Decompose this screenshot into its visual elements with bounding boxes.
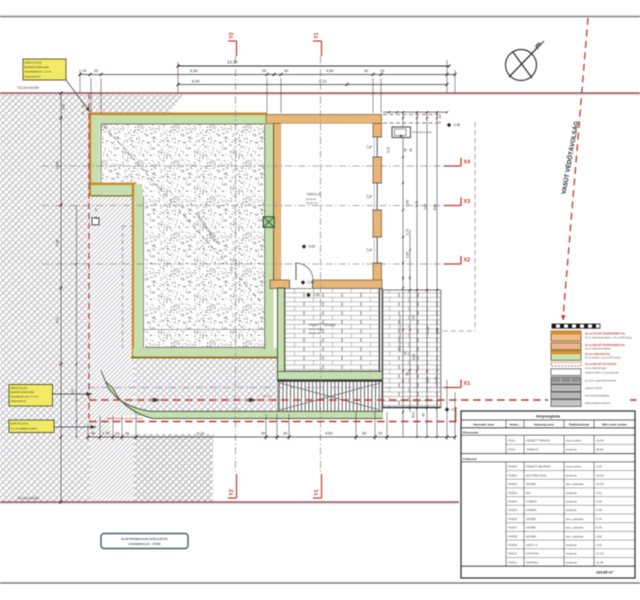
svg-text:4,50: 4,50 — [326, 68, 334, 73]
svg-text:X2: X2 — [464, 258, 471, 264]
svg-text:5,40: 5,40 — [596, 500, 602, 504]
svg-text:30: 30 — [404, 148, 408, 152]
svg-text:30 cm zsalukő + 12 cm XPS hősz: 30 cm zsalukő + 12 cm XPS hőszig. — [585, 357, 621, 359]
svg-text:kiemelkedő rel. 1 m-re: kiemelkedő rel. 1 m-re — [25, 70, 52, 74]
svg-text:SZOBA: SZOBA — [526, 526, 536, 530]
svg-text:30 cm vázkerámia falazat + 15: 30 cm vázkerámia falazat + 15 cm EPS hős… — [585, 336, 632, 339]
svg-text:15: 15 — [404, 351, 408, 355]
svg-text:10 cm BELSŐ VÁLASZFAL: 10 cm BELSŐ VÁLASZFAL — [585, 363, 617, 366]
svg-text:3,32: 3,32 — [596, 465, 602, 469]
svg-text:kerámia: kerámia — [566, 552, 577, 556]
svg-text:FSZ02: FSZ02 — [508, 482, 517, 486]
svg-text:ELEKTRONIKUSAN HITELESÍTVE: ELEKTRONIKUSAN HITELESÍTVE — [121, 536, 167, 541]
svg-text:34,66 m2: 34,66 m2 — [306, 201, 318, 205]
svg-text:35,5: 35,5 — [412, 412, 416, 418]
svg-text:1,0: 1,0 — [366, 145, 370, 149]
svg-text:kerámia: kerámia — [566, 473, 577, 477]
svg-text:30 cm vázkerámia falazat: 30 cm vázkerámia falazat — [585, 347, 611, 350]
svg-text:TÁROLÓ: TÁROLÓ — [306, 192, 321, 197]
svg-text:lam. parketta: lam. parketta — [566, 534, 584, 538]
svg-text:kerámia: kerámia — [566, 500, 577, 504]
svg-text:FÜRDŐ: FÜRDŐ — [526, 499, 537, 504]
svg-text:NAPPALI: NAPPALI — [526, 560, 539, 564]
svg-text:WC: WC — [526, 491, 532, 495]
svg-text:13,06: 13,06 — [596, 473, 604, 477]
svg-text:30: 30 — [402, 276, 406, 280]
svg-text:SZOBA: SZOBA — [526, 482, 536, 486]
svg-text:X1: X1 — [464, 381, 471, 387]
svg-text:1,23: 1,23 — [426, 377, 430, 383]
svg-text:7,07: 7,07 — [424, 204, 428, 210]
svg-text:helyezhető el: helyezhető el — [25, 74, 41, 78]
svg-text:15: 15 — [380, 68, 384, 73]
svg-text:kerámia: kerámia — [566, 508, 577, 512]
svg-text:3 m-es oldalkert határa: 3 m-es oldalkert határa — [11, 427, 38, 431]
svg-text:4,00: 4,00 — [56, 317, 60, 324]
svg-text:FSZ10: FSZ10 — [508, 552, 517, 556]
svg-text:4,55: 4,55 — [436, 328, 440, 334]
svg-text:30 cm BELSŐ TEHERHORDÓ FAL: 30 cm BELSŐ TEHERHORDÓ FAL — [585, 344, 626, 347]
svg-text:1,75: 1,75 — [102, 430, 110, 435]
svg-text:FSZ00: FSZ00 — [508, 465, 517, 469]
svg-text:Helyiséglista: Helyiséglista — [536, 413, 561, 418]
svg-text:4,01: 4,01 — [596, 491, 602, 495]
svg-text:12,35: 12,35 — [596, 482, 604, 486]
svg-text:2,80: 2,80 — [406, 200, 410, 206]
svg-text:vasbeton födém, ill. gerenda p: vasbeton födém, ill. gerenda pofa — [585, 371, 619, 374]
svg-text:földvisszatöltés tömörítve: földvisszatöltés tömörítve — [585, 402, 611, 405]
svg-text:1,00: 1,00 — [62, 104, 66, 110]
svg-text:mérőszekrény helye: mérőszekrény helye — [412, 131, 433, 134]
svg-text:7,58: 7,58 — [56, 240, 60, 247]
svg-text:-3,2: -3,2 — [451, 408, 457, 412]
svg-text:5,10: 5,10 — [319, 78, 327, 83]
svg-text:Padlóburkolat: Padlóburkolat — [569, 422, 589, 426]
svg-text:P101: P101 — [508, 438, 515, 442]
svg-text:30: 30 — [94, 208, 98, 212]
svg-text:15: 15 — [81, 111, 85, 115]
svg-text:9,82: 9,82 — [596, 534, 602, 538]
svg-text:7,05: 7,05 — [412, 315, 416, 321]
svg-text:FEDETT BEJÁRÓ: FEDETT BEJÁRÓ — [526, 464, 551, 469]
svg-text:3,25: 3,25 — [387, 147, 391, 153]
svg-text:vasbeton C12/15: vasbeton C12/15 — [585, 387, 603, 390]
svg-text:FSZ09: FSZ09 — [508, 543, 517, 547]
svg-text:Pinceszint: Pinceszint — [463, 430, 478, 434]
svg-text:TELEKHATÁR: TELEKHATÁR — [17, 86, 40, 90]
svg-text:40: 40 — [422, 413, 426, 417]
svg-text:6,80: 6,80 — [433, 204, 437, 210]
svg-text:-3,99: -3,99 — [307, 281, 315, 285]
svg-text:P102: P102 — [508, 448, 515, 452]
svg-text:2004 35 § (5 a): 2004 35 § (5 a) — [11, 421, 29, 425]
svg-text:-3,06: -3,06 — [308, 245, 316, 249]
svg-text:lam. parketta: lam. parketta — [566, 526, 584, 530]
svg-text:lam. parketta: lam. parketta — [566, 517, 584, 521]
svg-text:X4: X4 — [464, 160, 472, 166]
svg-text:19,06 m2: 19,06 m2 — [309, 331, 321, 335]
svg-text:FSZ04: FSZ04 — [508, 500, 517, 504]
svg-text:14,30: 14,30 — [227, 60, 238, 65]
svg-text:TELEKHATÁR: TELEKHATÁR — [17, 497, 40, 501]
svg-text:30 cm KÜLSŐ TEHERHORDÓ FAL: 30 cm KÜLSŐ TEHERHORDÓ FAL — [585, 333, 626, 336]
svg-text:Y1: Y1 — [314, 32, 320, 39]
svg-text:FSZ08: FSZ08 — [508, 534, 517, 538]
svg-text:lam. parketta: lam. parketta — [566, 482, 584, 486]
svg-text:ELŐTÉR-KÖZL.: ELŐTÉR-KÖZL. — [526, 472, 548, 477]
svg-text:helyezhető el: helyezhető el — [11, 399, 27, 403]
svg-text:30 cm LÁBAZATI FAL: 30 cm LÁBAZATI FAL — [585, 353, 611, 356]
svg-text:11,90: 11,90 — [56, 161, 60, 169]
svg-text:8,30: 8,30 — [190, 68, 198, 73]
svg-text:KONYHA: KONYHA — [526, 552, 539, 556]
svg-text:34,66: 34,66 — [596, 448, 604, 452]
svg-text:beton-térkő: beton-térkő — [309, 327, 323, 331]
svg-text:11,46: 11,46 — [596, 560, 604, 564]
svg-text:SZOBA: SZOBA — [526, 534, 536, 538]
svg-text:kerámia: kerámia — [566, 543, 577, 547]
svg-text:jár. lemez, gyeprácskő burkola: jár. lemez, gyeprácskő burkolat — [584, 380, 616, 383]
svg-text:30: 30 — [406, 372, 410, 376]
svg-text:kerámia: kerámia — [566, 560, 577, 564]
svg-text:1,0: 1,0 — [366, 248, 370, 252]
svg-text:8,90: 8,90 — [192, 78, 200, 83]
svg-text:FEDETT TERASZ: FEDETT TERASZ — [526, 438, 550, 442]
svg-text:4,50: 4,50 — [325, 430, 333, 435]
svg-text:HÁZT. H.: HÁZT. H. — [526, 543, 538, 547]
svg-text:5,03: 5,03 — [596, 543, 602, 547]
svg-text:15,19: 15,19 — [263, 394, 271, 398]
svg-text:8,10: 8,10 — [197, 430, 205, 435]
svg-text:Y1: Y1 — [314, 489, 320, 496]
svg-text:KAMRA: KAMRA — [526, 508, 537, 512]
svg-text:beton-térkő: beton-térkő — [566, 438, 582, 442]
svg-text:SZOBA: SZOBA — [526, 517, 536, 521]
svg-text:ZARÁNDFALVA – ÉTDR: ZARÁNDFALVA – ÉTDR — [128, 541, 161, 546]
svg-text:X3: X3 — [464, 199, 471, 205]
svg-text:TÁMFAL MELLVÉD 45 cm: TÁMFAL MELLVÉD 45 cm — [397, 315, 402, 353]
svg-text:Helyiség neve: Helyiség neve — [534, 422, 554, 426]
svg-text:164,85 m²: 164,85 m² — [596, 571, 614, 575]
svg-text:FSZ05: FSZ05 — [508, 508, 517, 512]
svg-text:kerámia: kerámia — [566, 448, 577, 452]
svg-text:1,0: 1,0 — [366, 194, 370, 198]
svg-text:FSZ06: FSZ06 — [508, 517, 517, 521]
svg-text:15: 15 — [378, 430, 382, 435]
svg-text:1,05: 1,05 — [435, 377, 439, 383]
svg-text:kiemelkedő max. 3 m-re: kiemelkedő max. 3 m-re — [11, 395, 39, 399]
svg-text:19,06: 19,06 — [596, 438, 604, 442]
svg-text:1,70: 1,70 — [415, 201, 419, 207]
svg-text:1,70: 1,70 — [406, 229, 410, 235]
svg-text:BEÉPÍTÉSI HATÁRVONAL: BEÉPÍTÉSI HATÁRVONAL — [107, 416, 144, 421]
svg-text:FSZ01: FSZ01 — [508, 473, 517, 477]
svg-text:TÁROLÓ: TÁROLÓ — [526, 447, 539, 452]
svg-text:15: 15 — [115, 430, 119, 435]
svg-text:Használó neve: Használó neve — [473, 422, 494, 426]
svg-text:Y2: Y2 — [229, 32, 235, 39]
svg-text:1,80: 1,80 — [406, 252, 410, 258]
svg-text:Helyis...: Helyis... — [509, 422, 521, 426]
svg-text:45: 45 — [409, 148, 413, 152]
svg-text:40: 40 — [408, 276, 412, 280]
svg-text:9,70: 9,70 — [596, 517, 602, 521]
svg-text:5,85: 5,85 — [412, 354, 416, 360]
svg-text:-3,08: -3,08 — [312, 293, 320, 297]
svg-text:tömörített kavicságyazat: tömörített kavicságyazat — [585, 395, 610, 398]
svg-text:beton-térkő: beton-térkő — [566, 465, 582, 469]
svg-text:15: 15 — [82, 68, 86, 73]
svg-text:10 cm válaszfal tégla: 10 cm válaszfal tégla — [585, 367, 607, 370]
svg-text:FSZ11: FSZ11 — [508, 560, 517, 564]
svg-text:4,15: 4,15 — [426, 327, 430, 333]
svg-text:8,76: 8,76 — [596, 526, 602, 530]
svg-text:17,19: 17,19 — [596, 552, 604, 556]
svg-text:3,45: 3,45 — [596, 508, 602, 512]
svg-text:FEDETT TERASZ: FEDETT TERASZ — [309, 323, 336, 327]
svg-text:Földszint: Földszint — [463, 457, 477, 461]
svg-text:15: 15 — [94, 216, 98, 220]
svg-text:Mért nettó terület: Mért nettó terület — [602, 422, 627, 426]
svg-text:FSZ03: FSZ03 — [508, 491, 517, 495]
svg-text:-2,48: -2,48 — [453, 123, 461, 127]
svg-text:kerámia: kerámia — [566, 491, 577, 495]
svg-text:FSZ07: FSZ07 — [508, 526, 517, 530]
svg-text:Y2: Y2 — [229, 489, 235, 496]
